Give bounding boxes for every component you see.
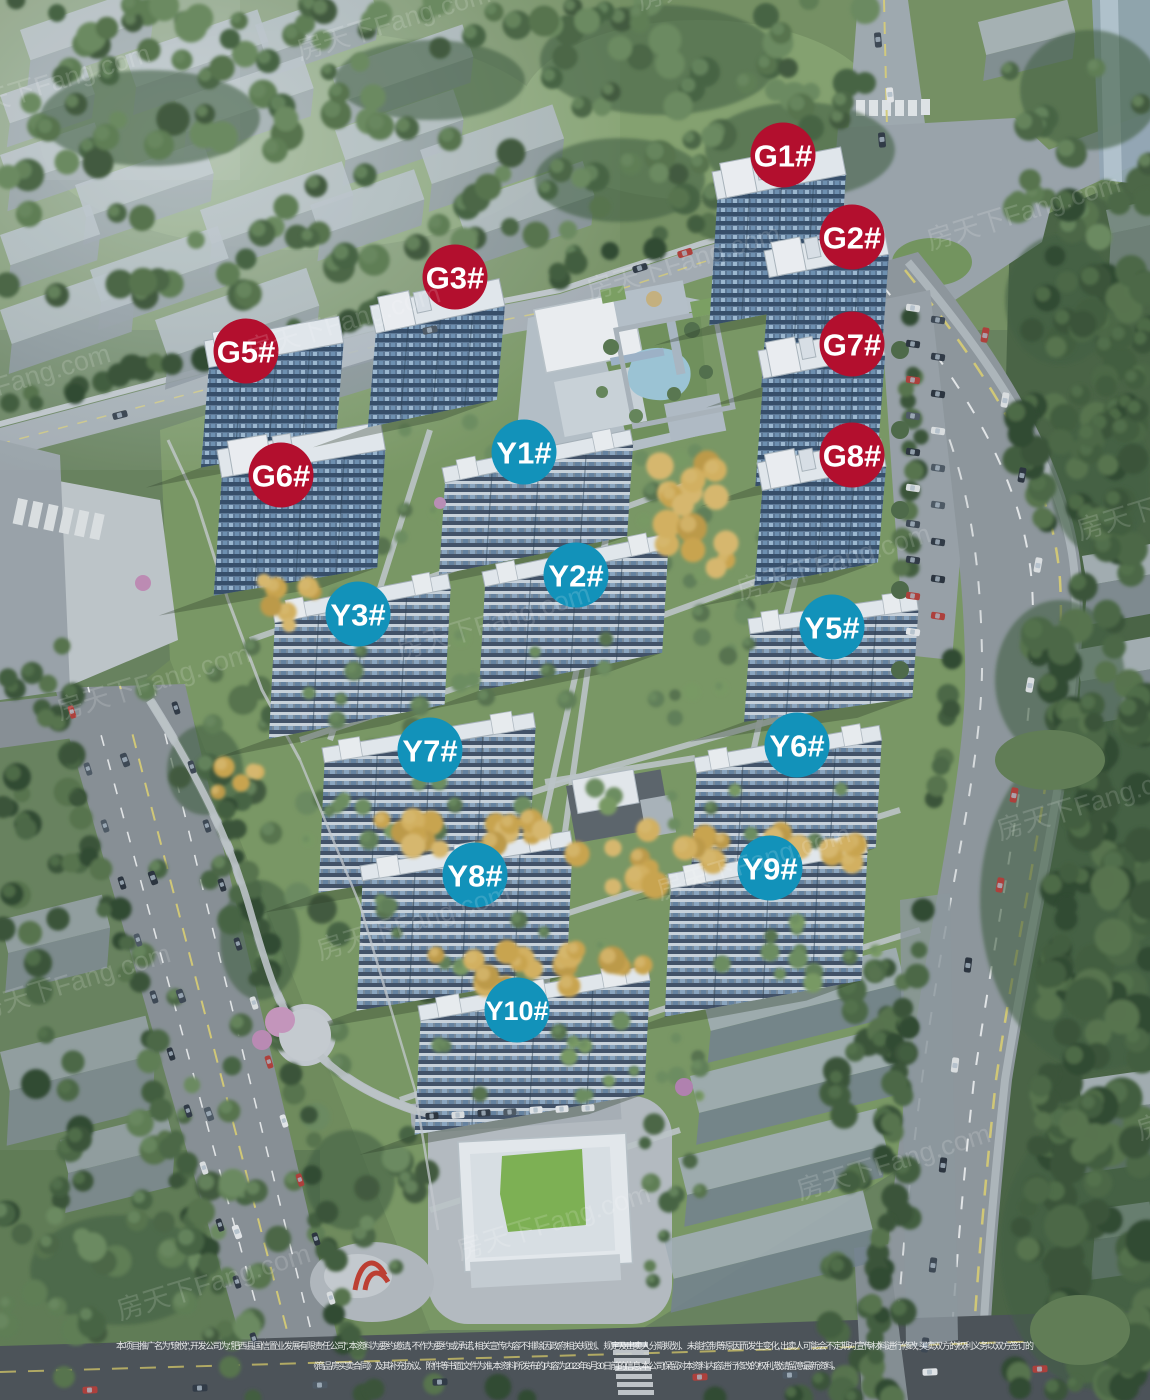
svg-text:Y6#: Y6# xyxy=(769,729,824,764)
svg-text:Y1#: Y1# xyxy=(496,436,551,471)
svg-text:Y7#: Y7# xyxy=(402,734,457,769)
svg-text:G1#: G1# xyxy=(754,139,813,174)
svg-text:本项目推广名为"琅悦", 开发公司为:"肥西县国信置业发展有: 本项目推广名为"琅悦", 开发公司为:"肥西县国信置业发展有限责任公司", 本资… xyxy=(116,1340,1034,1351)
svg-text:G8#: G8# xyxy=(823,439,882,474)
svg-text:Y5#: Y5# xyxy=(804,611,859,646)
svg-text:《商品房买卖合同》及其补充协议、附件等书面文件为准, 本资料: 《商品房买卖合同》及其补充协议、附件等书面文件为准, 本资料所发布的内容为202… xyxy=(309,1360,841,1371)
svg-text:G2#: G2# xyxy=(823,221,882,256)
svg-text:G7#: G7# xyxy=(823,328,882,363)
svg-text:Y3#: Y3# xyxy=(330,598,385,633)
svg-text:Y10#: Y10# xyxy=(485,996,548,1026)
svg-text:G6#: G6# xyxy=(252,459,311,494)
